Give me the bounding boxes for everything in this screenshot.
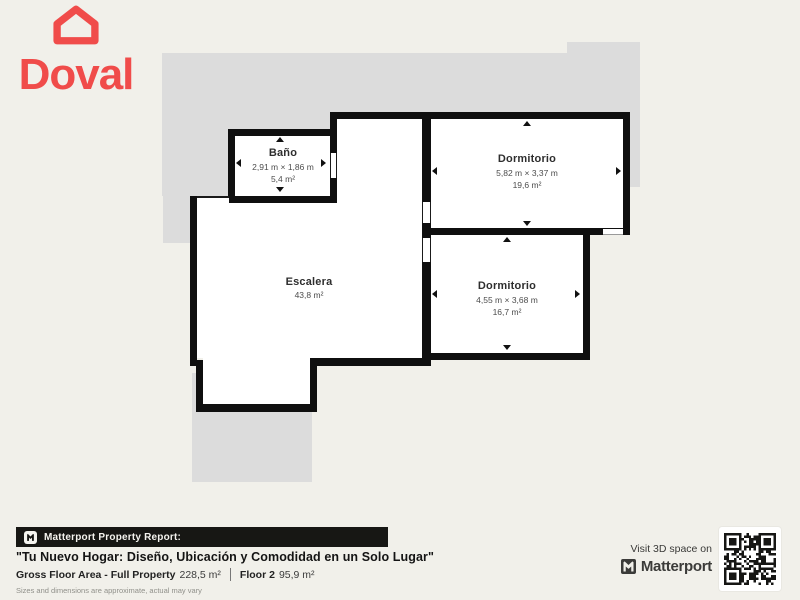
disclaimer-text: Sizes and dimensions are approximate, ac… [16, 586, 202, 595]
arrow-up-icon [523, 121, 531, 126]
divider [230, 568, 231, 581]
room-area: 16,7 m² [427, 307, 587, 317]
visit-text: Visit 3D space on [560, 543, 712, 555]
window-dormitorio1 [603, 229, 624, 235]
door-dormitorio2 [422, 238, 431, 262]
room-name: Escalera [249, 276, 369, 288]
room-dimensions: 4,55 m × 3,68 m [427, 295, 587, 305]
room-area: 19,6 m² [447, 180, 607, 190]
wall-bano-bottom [228, 196, 337, 203]
label-dormitorio1: Dormitorio 5,82 m × 3,37 m 19,6 m² [447, 153, 607, 190]
matterport-logo: Matterport [560, 558, 712, 575]
report-header-bar: Matterport Property Report: [16, 527, 388, 547]
label-escalera: Escalera 43,8 m² [249, 276, 369, 300]
label-dormitorio2: Dormitorio 4,55 m × 3,68 m 16,7 m² [427, 280, 587, 317]
property-report-page: { "brand": { "name": "Doval", "color": "… [0, 0, 800, 600]
floor-area-value: 95,9 m² [279, 569, 315, 581]
wall-dormitorio-divider [422, 228, 630, 235]
room-name: Dormitorio [447, 153, 607, 165]
arrow-left-icon [432, 167, 437, 175]
brand-name: Doval [6, 53, 146, 97]
window-escalera-top [197, 196, 229, 203]
room-area: 5,4 m² [233, 174, 333, 184]
wall-dormitorio1-right [623, 112, 630, 235]
wall-escalera-left [190, 196, 197, 366]
arrow-up-icon [276, 137, 284, 142]
room-escalera-notch [203, 358, 310, 404]
gross-floor-area-value: 228,5 m² [179, 569, 220, 581]
gross-floor-area-label: Gross Floor Area - Full Property [16, 569, 175, 581]
arrow-right-icon [616, 167, 621, 175]
door-dormitorio1 [422, 202, 431, 223]
wall-notch-right [310, 358, 317, 412]
arrow-up-icon [503, 237, 511, 242]
house-icon [49, 4, 103, 46]
matterport-icon [621, 559, 636, 574]
arrow-down-icon [523, 221, 531, 226]
room-name: Baño [233, 147, 333, 159]
wall-escalera-bottom [310, 358, 431, 366]
document-title: "Tu Nuevo Hogar: Diseño, Ubicación y Com… [16, 550, 434, 564]
arrow-down-icon [276, 187, 284, 192]
area-stats: Gross Floor Area - Full Property 228,5 m… [16, 568, 315, 581]
matterport-icon [24, 531, 37, 544]
room-name: Dormitorio [427, 280, 587, 292]
room-dimensions: 2,91 m × 1,86 m [233, 162, 333, 172]
wall-bano-top [228, 129, 334, 136]
wall-top [330, 112, 630, 119]
arrow-down-icon [503, 345, 511, 350]
report-label: Matterport Property Report: [44, 532, 181, 543]
label-bano: Baño 2,91 m × 1,86 m 5,4 m² [233, 147, 333, 184]
doval-logo: Doval [6, 4, 146, 97]
visit-3d-cta: Visit 3D space on Matterport [560, 543, 712, 575]
wall-notch-bottom [196, 404, 317, 412]
matterport-wordmark: Matterport [641, 558, 712, 575]
qr-code [719, 527, 781, 591]
wall-dormitorio2-bottom [424, 353, 590, 360]
silhouette-left-notch [163, 196, 190, 243]
wall-notch-left [196, 360, 203, 410]
room-dimensions: 5,82 m × 3,37 m [447, 168, 607, 178]
wall-center-upper [422, 112, 431, 202]
room-area: 43,8 m² [249, 290, 369, 300]
floor-label: Floor 2 [240, 569, 275, 581]
